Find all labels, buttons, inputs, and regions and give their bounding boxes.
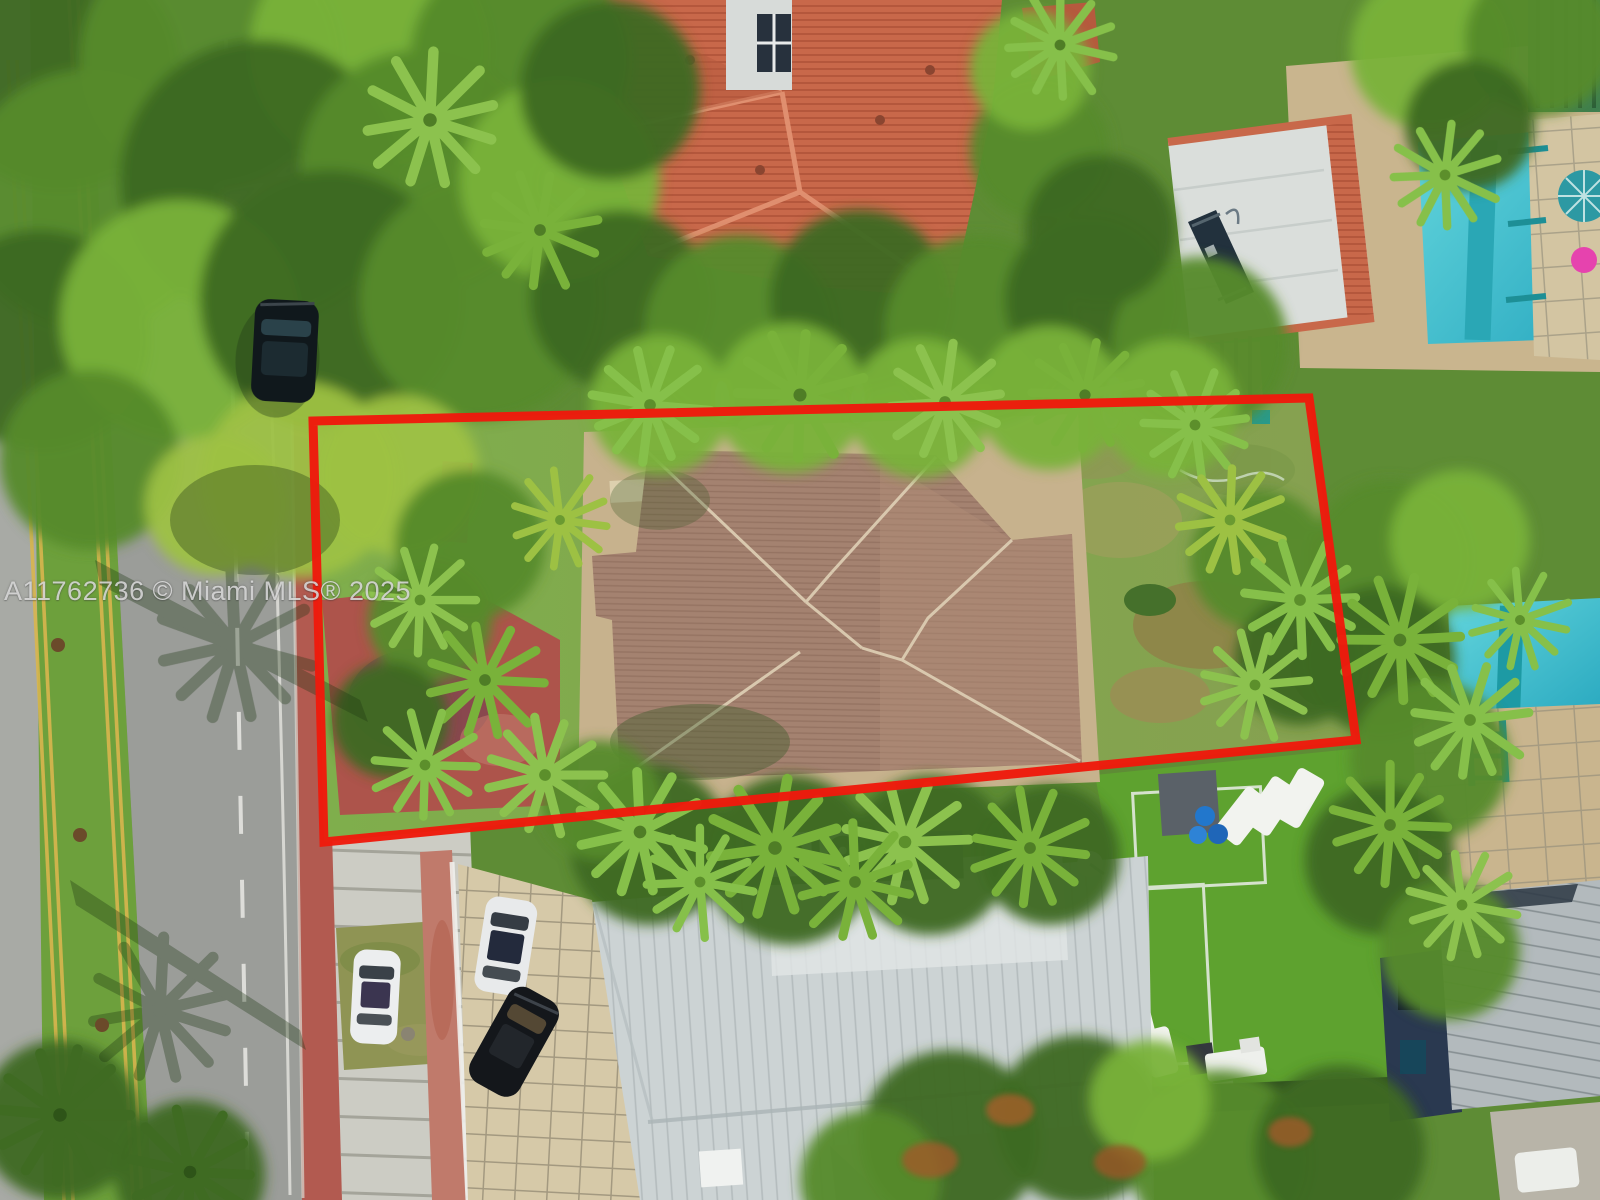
pink-float [1571, 247, 1597, 273]
navy-window-2 [1400, 1040, 1426, 1074]
aerial-photo: A11762736 © Miami MLS® 2025 [0, 0, 1600, 1200]
manhole [401, 1027, 415, 1041]
roof-white-vent [699, 1149, 743, 1188]
mls-watermark: A11762736 © Miami MLS® 2025 [4, 576, 424, 607]
outdoor-sofa [1514, 1147, 1580, 1193]
pergola-shed [1158, 770, 1220, 836]
roof-tree-shadow-2 [610, 470, 710, 530]
parked-car-white-1 [349, 949, 401, 1045]
